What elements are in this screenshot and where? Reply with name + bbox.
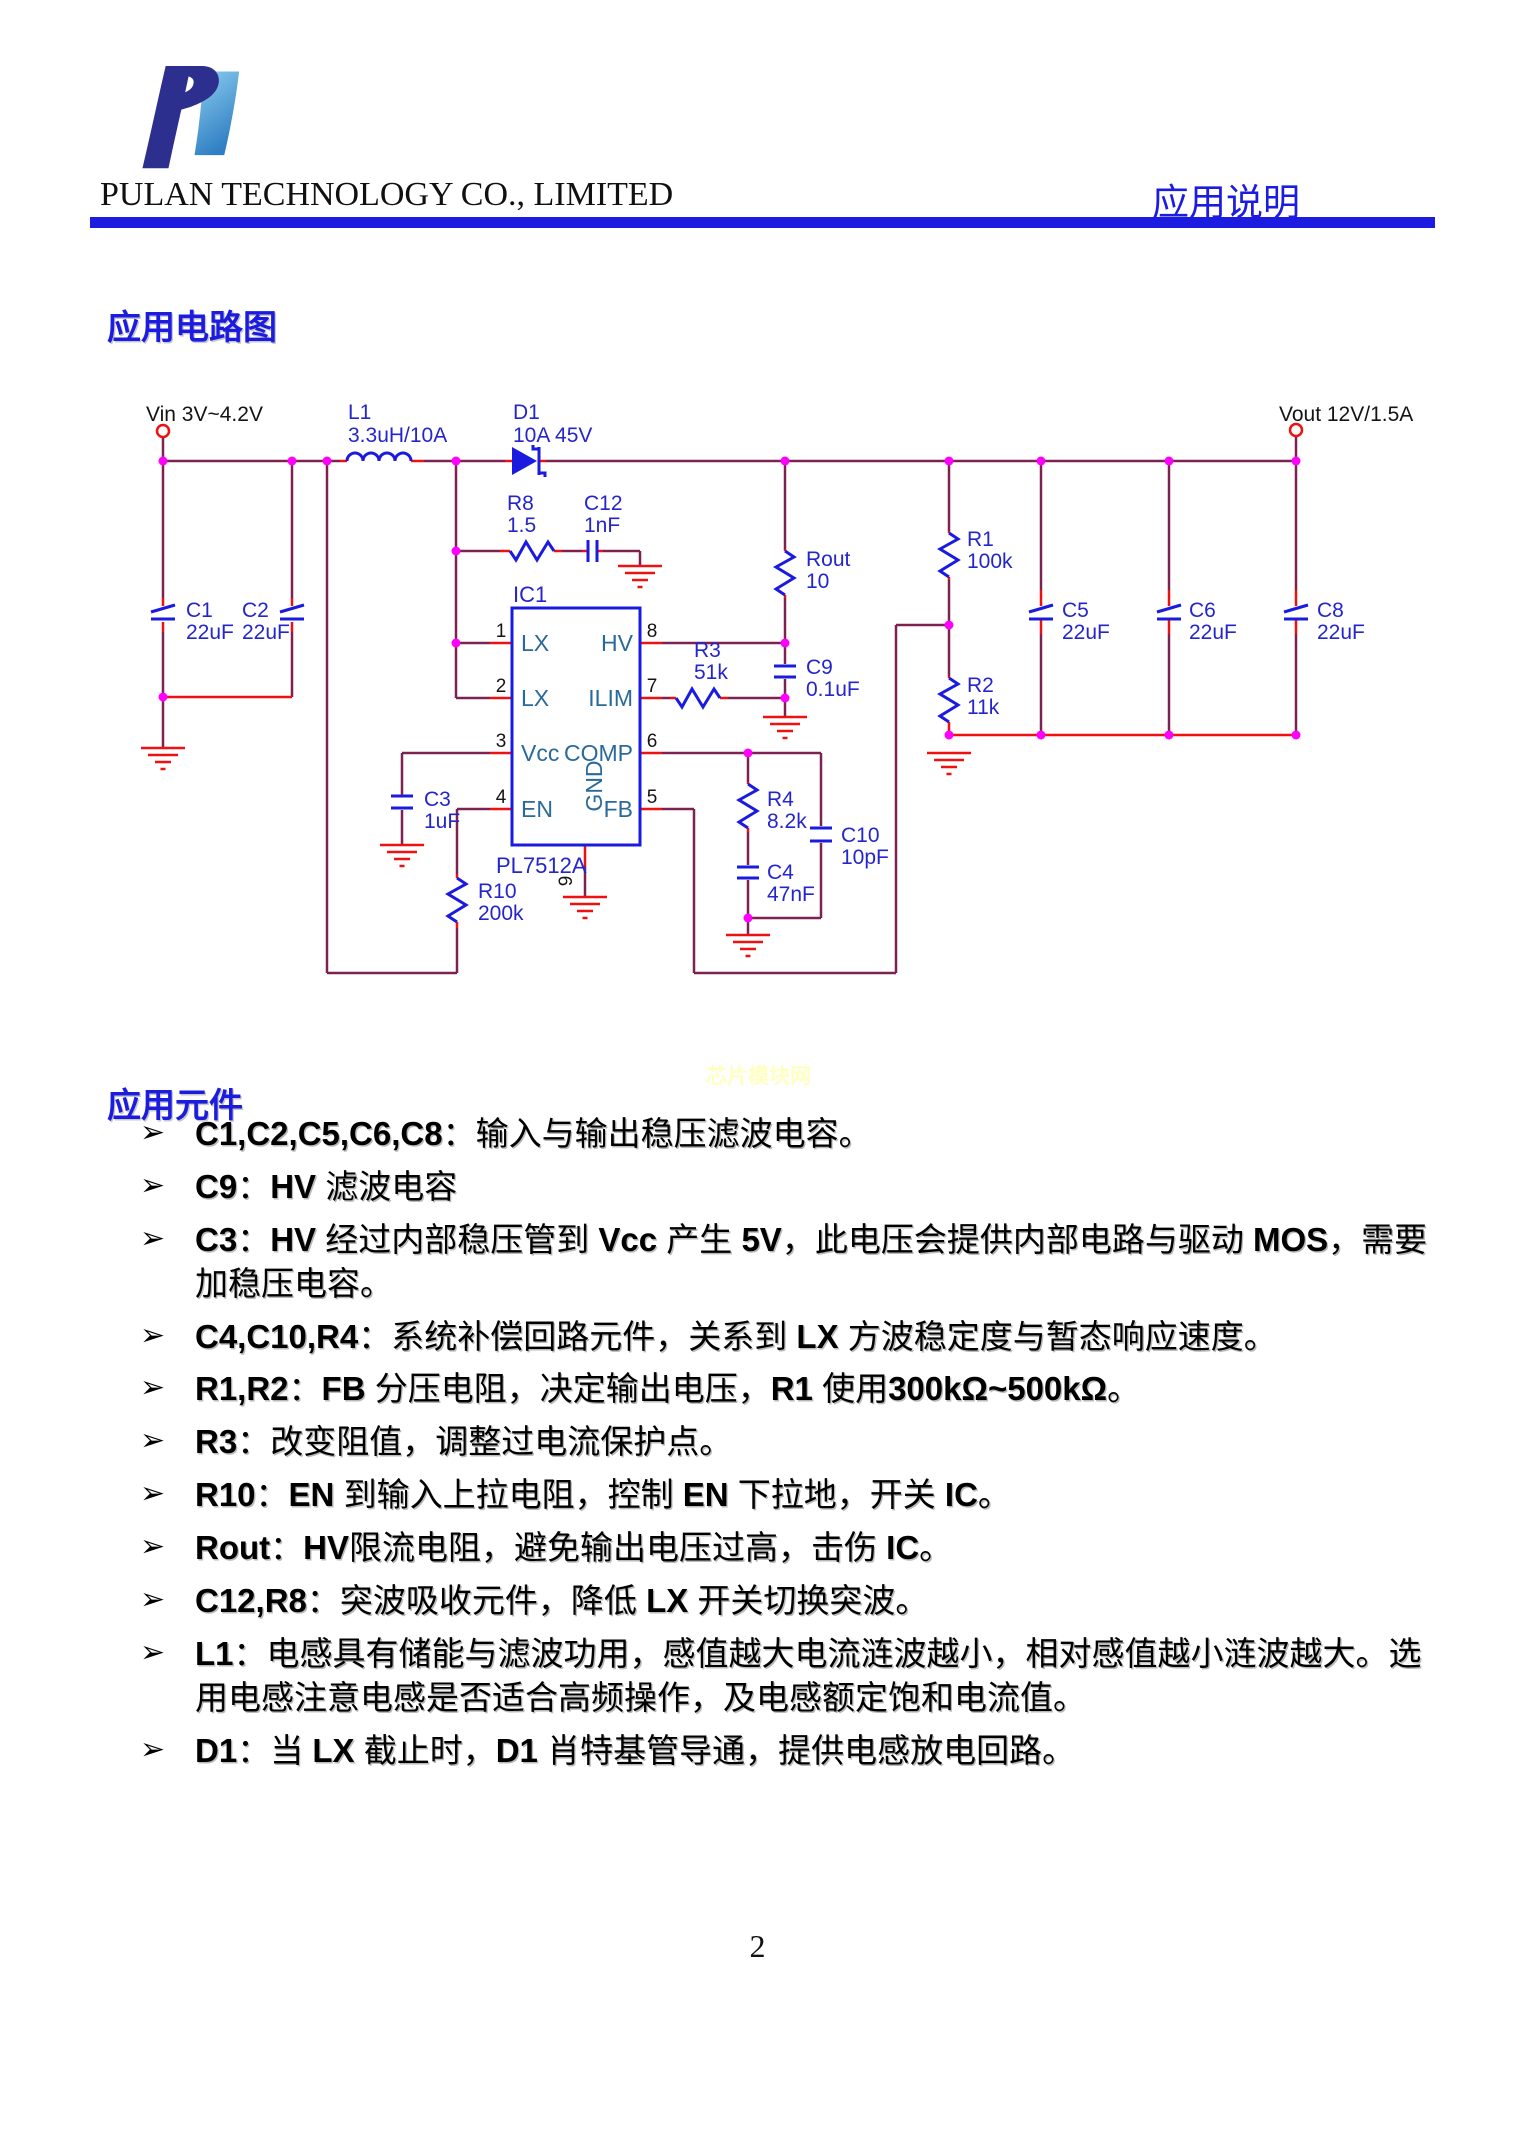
- pin-name-lx2: LX: [521, 685, 549, 711]
- bullet-text: D1：当 LX 截止时，D1 肖特基管导通，提供电感放电回路。: [195, 1732, 1075, 1769]
- pin-number-4: 4: [496, 787, 507, 808]
- bullet-marker: ➢: [140, 1421, 165, 1461]
- bullet-marker: ➢: [140, 1730, 165, 1770]
- capacitor-C2: C2 22uF: [242, 599, 304, 644]
- bullet-text: R10：EN 到输入上拉电阻，控制 EN 下拉地，开关 IC。: [195, 1476, 1011, 1513]
- label-D1-ref: D1: [513, 401, 540, 424]
- label-R10-ref: R10: [478, 880, 517, 903]
- label-R1-value: 100k: [967, 550, 1013, 573]
- list-item-c12r8: ➢C12,R8：突波吸收元件，降低 LX 开关切换突波。: [140, 1579, 1440, 1623]
- pin-name-vcc: Vcc: [521, 740, 559, 766]
- label-C4-ref: C4: [767, 861, 794, 884]
- label-C12-ref: C12: [584, 492, 623, 515]
- inductor-L1: L1 3.3uH/10A: [347, 401, 447, 461]
- pin-number-3: 3: [496, 731, 507, 752]
- pin-number-9: 9: [556, 876, 577, 887]
- bullet-marker: ➢: [140, 1633, 165, 1673]
- pin-number-7: 7: [647, 676, 658, 697]
- bullet-marker: ➢: [140, 1580, 165, 1620]
- label-C10-value: 10pF: [841, 846, 889, 869]
- bullet-text: C1,C2,C5,C6,C8：输入与输出稳压滤波电容。: [195, 1115, 872, 1152]
- bullet-text: Rout：HV限流电阻，避免输出电压过高，击伤 IC。: [195, 1529, 952, 1566]
- label-C4-value: 47nF: [767, 883, 815, 906]
- label-C9-value: 0.1uF: [806, 678, 860, 701]
- label-R4-value: 8.2k: [767, 810, 807, 833]
- label-R2-ref: R2: [967, 674, 994, 697]
- vin-terminal: Vin 3V~4.2V: [146, 403, 263, 437]
- label-C2-ref: C2: [242, 599, 269, 622]
- label-R8-ref: R8: [507, 492, 534, 515]
- bullet-marker: ➢: [140, 1316, 165, 1356]
- label-C5-ref: C5: [1062, 599, 1089, 622]
- vin-net-label: Vin 3V~4.2V: [146, 403, 263, 426]
- vout-terminal: Vout 12V/1.5A: [1279, 403, 1413, 436]
- label-C1-value: 22uF: [186, 621, 234, 644]
- label-C12-value: 1nF: [584, 514, 620, 537]
- list-item-rout: ➢Rout：HV限流电阻，避免输出电压过高，击伤 IC。: [140, 1526, 1440, 1570]
- resistor-R2: R2 11k: [940, 674, 1000, 722]
- list-item-d1: ➢D1：当 LX 截止时，D1 肖特基管导通，提供电感放电回路。: [140, 1729, 1440, 1773]
- label-R1-ref: R1: [967, 528, 994, 551]
- label-D1-value: 10A 45V: [513, 424, 592, 447]
- ic-PL7512A: IC1 PL7512A 1 2 3 4 8 7 6 5 9 LX LX Vcc …: [496, 582, 658, 886]
- bullet-text: C12,R8：突波吸收元件，降低 LX 开关切换突波。: [195, 1582, 928, 1619]
- pin-name-gnd: GND: [581, 760, 607, 811]
- label-Rout-ref: Rout: [806, 548, 851, 571]
- datasheet-page: PULAN TECHNOLOGY CO., LIMITED 应用说明 应用电路图…: [0, 0, 1515, 2144]
- diode-D1: D1 10A 45V: [512, 401, 592, 477]
- pin-number-2: 2: [496, 676, 507, 697]
- bullet-marker: ➢: [140, 1527, 165, 1567]
- label-L1-ref: L1: [348, 401, 371, 424]
- label-C6-ref: C6: [1189, 599, 1216, 622]
- pin-name-ilim: ILIM: [588, 685, 633, 711]
- list-item-c4c10r4: ➢C4,C10,R4：系统补偿回路元件，关系到 LX 方波稳定度与暂态响应速度。: [140, 1315, 1440, 1359]
- label-R10-value: 200k: [478, 902, 524, 925]
- resistor-R1: R1 100k: [940, 528, 1013, 577]
- company-name: PULAN TECHNOLOGY CO., LIMITED: [100, 176, 673, 214]
- bullet-marker: ➢: [140, 1113, 165, 1153]
- pin-number-5: 5: [647, 787, 658, 808]
- pin-name-lx1: LX: [521, 630, 549, 656]
- label-C5-value: 22uF: [1062, 621, 1110, 644]
- pin-stubs: [163, 461, 1296, 928]
- junction-dots: [159, 457, 1301, 923]
- list-item-c1c2c5c6c8: ➢C1,C2,C5,C6,C8：输入与输出稳压滤波电容。: [140, 1112, 1440, 1156]
- label-C1-ref: C1: [186, 599, 213, 622]
- bullet-text: L1：电感具有储能与滤波功用，感值越大电流涟波越小，相对感值越小涟波越大。选用电…: [195, 1635, 1422, 1716]
- resistor-R8: R8 1.5: [507, 492, 554, 560]
- list-item-r10: ➢R10：EN 到输入上拉电阻，控制 EN 下拉地，开关 IC。: [140, 1473, 1440, 1517]
- pin-name-hv: HV: [601, 630, 634, 656]
- pin-name-fb: FB: [604, 796, 633, 822]
- label-C9-ref: C9: [806, 656, 833, 679]
- bullet-text: C9：HV 滤波电容: [195, 1168, 457, 1205]
- bullet-marker: ➢: [140, 1474, 165, 1514]
- label-R3-ref: R3: [694, 639, 721, 662]
- resistor-Rout: Rout 10: [776, 548, 851, 595]
- header-rule: [90, 217, 1435, 228]
- label-C10-ref: C10: [841, 824, 880, 847]
- bullet-text: C4,C10,R4：系统补偿回路元件，关系到 LX 方波稳定度与暂态响应速度。: [195, 1318, 1277, 1355]
- bullet-text: C3：HV 经过内部稳压管到 Vcc 产生 5V，此电压会提供内部电路与驱动 M…: [195, 1221, 1427, 1302]
- logo-dark-shape: [142, 66, 190, 168]
- pin-number-8: 8: [647, 621, 658, 642]
- list-item-l1: ➢L1：电感具有储能与滤波功用，感值越大电流涟波越小，相对感值越小涟波越大。选用…: [140, 1632, 1440, 1720]
- label-C8-value: 22uF: [1317, 621, 1365, 644]
- pin-number-1: 1: [496, 621, 507, 642]
- label-C3-ref: C3: [424, 788, 451, 811]
- list-item-c3: ➢C3：HV 经过内部稳压管到 Vcc 产生 5V，此电压会提供内部电路与驱动 …: [140, 1218, 1440, 1306]
- watermark: 芯片模块网: [706, 1060, 811, 1090]
- wires: [163, 436, 1296, 973]
- bullet-marker: ➢: [140, 1219, 165, 1259]
- component-notes-list: ➢C1,C2,C5,C6,C8：输入与输出稳压滤波电容。 ➢C9：HV 滤波电容…: [140, 1112, 1440, 1781]
- label-R2-value: 11k: [967, 696, 1000, 719]
- list-item-r1r2: ➢R1,R2：FB 分压电阻，决定输出电压，R1 使用300kΩ~500kΩ。: [140, 1367, 1440, 1411]
- label-R3-value: 51k: [694, 661, 728, 684]
- label-L1-value: 3.3uH/10A: [348, 424, 447, 447]
- label-IC1-ref: IC1: [513, 582, 547, 607]
- label-C3-value: 1uF: [424, 810, 460, 833]
- list-item-r3: ➢R3：改变阻值，调整过电流保护点。: [140, 1420, 1440, 1464]
- label-R8-value: 1.5: [507, 514, 536, 537]
- bullet-marker: ➢: [140, 1368, 165, 1408]
- label-Rout-value: 10: [806, 570, 829, 593]
- circuit-section-title: 应用电路图: [107, 300, 277, 349]
- resistor-R3: R3 51k: [676, 639, 728, 707]
- resistor-R10: R10 200k: [448, 878, 524, 925]
- pin-number-6: 6: [647, 731, 658, 752]
- bullet-text: R1,R2：FB 分压电阻，决定输出电压，R1 使用300kΩ~500kΩ。: [195, 1370, 1140, 1407]
- label-IC1-part: PL7512A: [496, 853, 587, 878]
- pin-name-en: EN: [521, 796, 553, 822]
- vout-net-label: Vout 12V/1.5A: [1279, 403, 1413, 426]
- company-logo: [122, 58, 280, 178]
- label-R4-ref: R4: [767, 788, 794, 811]
- list-item-c9: ➢C9：HV 滤波电容: [140, 1165, 1440, 1209]
- label-C2-value: 22uF: [242, 621, 290, 644]
- label-C8-ref: C8: [1317, 599, 1344, 622]
- label-C6-value: 22uF: [1189, 621, 1237, 644]
- bullet-marker: ➢: [140, 1166, 165, 1206]
- page-number: 2: [0, 1928, 1515, 1965]
- resistor-R4: R4 8.2k: [739, 784, 807, 833]
- bullet-text: R3：改变阻值，调整过电流保护点。: [195, 1423, 732, 1460]
- application-circuit-schematic: Vin 3V~4.2V Vout 12V/1.5A L1 3.3uH/10A D…: [0, 395, 1515, 1020]
